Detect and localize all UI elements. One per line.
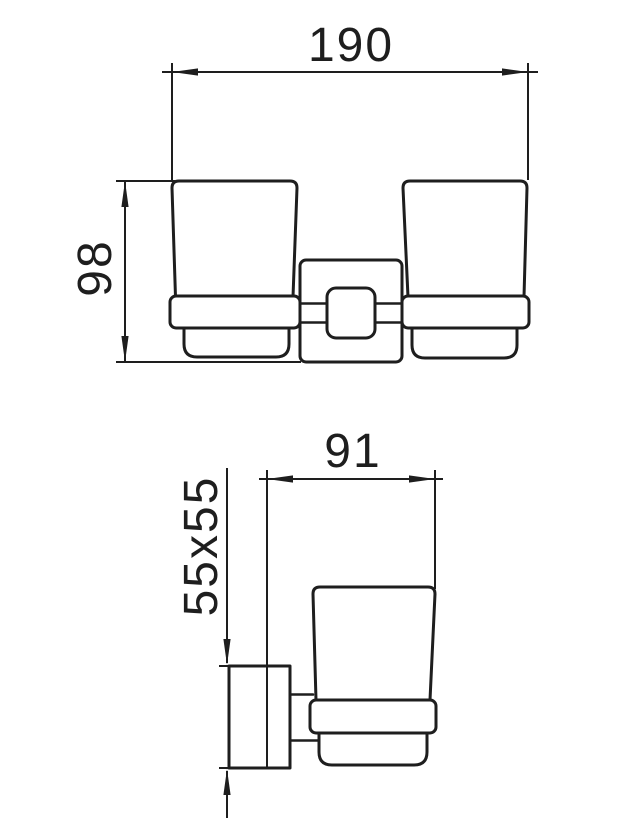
side-cup-body (313, 587, 435, 700)
front-width-label: 190 (308, 19, 394, 72)
side-cup-bottom (319, 733, 427, 765)
front-height-label: 98 (69, 239, 122, 296)
right-cup-bottom (412, 328, 517, 358)
arrowhead-down (121, 336, 128, 362)
left-cup-body (172, 181, 297, 297)
wall-plate (229, 666, 290, 768)
front-view: 190 98 (69, 19, 538, 362)
arrowhead-down (223, 639, 230, 665)
drawing-canvas: 190 98 (0, 0, 638, 826)
arrowhead-left (172, 68, 198, 75)
side-depth-label: 91 (324, 425, 381, 478)
technical-drawing: 190 98 (0, 0, 638, 826)
arrowhead-right (502, 68, 528, 75)
front-view-geometry (170, 181, 529, 362)
arrowhead-right (409, 475, 435, 482)
right-cup-body (403, 181, 527, 297)
arrowhead-up (223, 769, 230, 795)
left-holder-ring (170, 296, 300, 328)
side-view: 91 55x55 (175, 425, 443, 818)
side-view-geometry (229, 587, 436, 768)
front-width-dimension: 190 (162, 19, 538, 180)
side-plate-label: 55x55 (175, 476, 228, 617)
side-holder-ring (310, 700, 436, 733)
right-holder-ring (402, 296, 529, 328)
left-cup-bottom (184, 328, 289, 357)
arrowhead-left (267, 475, 293, 482)
center-knob (327, 288, 375, 338)
side-plate-dimension: 55x55 (175, 468, 231, 818)
arrowhead-up (121, 181, 128, 207)
